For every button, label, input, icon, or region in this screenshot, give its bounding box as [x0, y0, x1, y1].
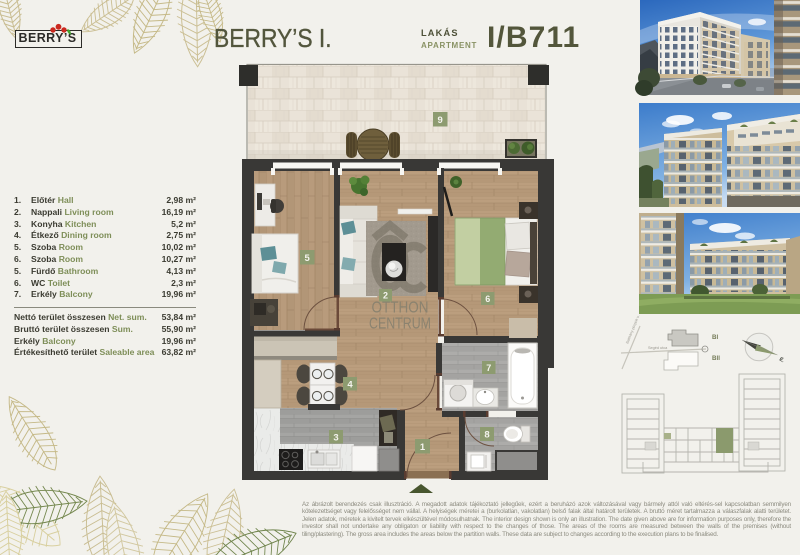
svg-text:É.: É. [778, 355, 787, 365]
svg-text:Segéd utca: Segéd utca [648, 346, 668, 350]
svg-text:BI: BI [712, 334, 718, 341]
svg-text:BII: BII [712, 355, 720, 362]
